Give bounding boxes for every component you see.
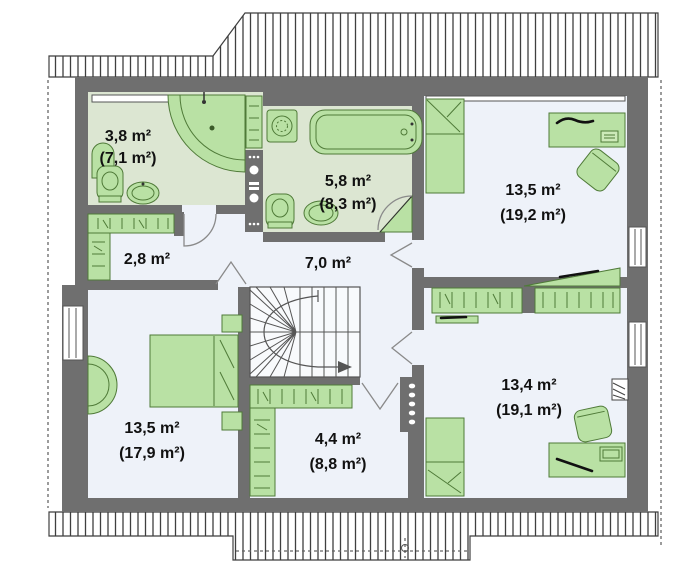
window-left (63, 306, 83, 360)
bed-icon (426, 418, 464, 496)
desk-icon (549, 113, 625, 147)
roof-hatch-top (49, 13, 658, 77)
room-label-bedroom-bottom-right-gross: (19,1 m²) (496, 402, 562, 419)
room-label-wardrobe-room-gross: (8,8 m²) (310, 456, 367, 473)
washing-machine-icon (267, 110, 297, 142)
room-label-bedroom-bottom-right: 13,4 m² (501, 377, 556, 394)
shelf-icon (436, 316, 478, 323)
roof-hatch-bottom (49, 512, 658, 560)
wardrobe-icon (432, 288, 522, 313)
room-label-bedroom-bottom-left-gross: (17,9 m²) (119, 445, 185, 462)
room-label-hallway: 7,0 m² (305, 255, 351, 272)
room-label-bedroom-top-right-gross: (19,2 m²) (500, 207, 566, 224)
bed-icon (150, 335, 238, 407)
wardrobe-icon (88, 214, 174, 233)
room-label-wardrobe-room: 4,4 m² (315, 431, 361, 448)
toilet-icon (97, 166, 123, 202)
washbasin-icon (127, 182, 159, 204)
duct-shaft-bathroom (245, 150, 263, 232)
staircase (250, 287, 360, 377)
room-label-bath-small: 3,8 m² (105, 128, 151, 145)
room-label-bath-main: 5,8 m² (325, 173, 371, 190)
window-right-1 (629, 227, 646, 267)
room-label-bath-small-gross: (7,1 m²) (100, 150, 157, 167)
room-label-bath-main-gross: (8,3 m²) (320, 196, 377, 213)
nightstand-icon (222, 315, 242, 332)
window-right-2 (629, 322, 646, 367)
room-label-bedroom-top-right: 13,5 m² (505, 182, 560, 199)
wardrobe-icon (250, 408, 275, 496)
nightstand-icon (222, 412, 242, 430)
notepad-icon (601, 131, 618, 142)
radiator-icon (612, 379, 628, 400)
bed-icon (426, 99, 464, 193)
room-label-bedroom-bottom-left: 13,5 m² (124, 420, 179, 437)
floor-plan-canvas: 3,8 m² (7,1 m²) 5,8 m² (8,3 m²) 13,5 m² … (0, 0, 700, 575)
room-label-closet: 2,8 m² (124, 251, 170, 268)
chair-icon (573, 405, 613, 443)
wardrobe-icon (535, 288, 620, 313)
bathtub-icon (310, 110, 422, 154)
desk-icon (549, 443, 625, 477)
toilet-icon (266, 194, 294, 228)
wardrobe-icon (88, 233, 110, 280)
floor-plan: 3,8 m² (7,1 m²) 5,8 m² (8,3 m²) 13,5 m² … (0, 0, 700, 575)
